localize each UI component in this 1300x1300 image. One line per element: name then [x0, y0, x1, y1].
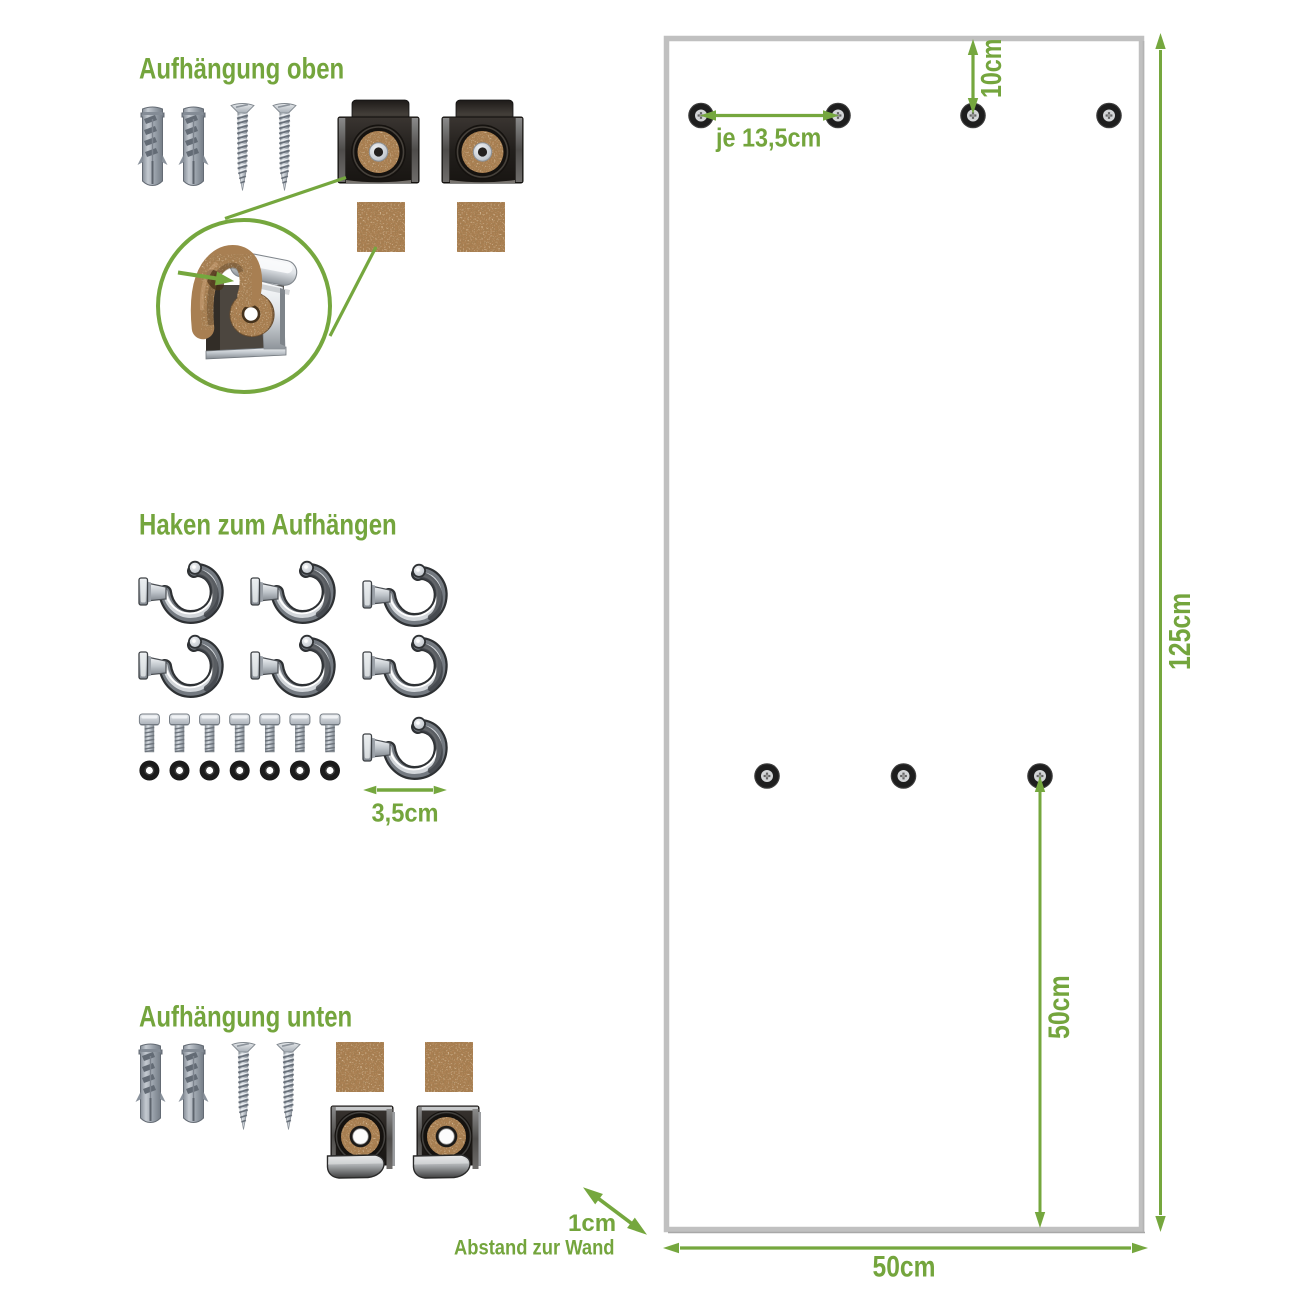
svg-text:3,5cm: 3,5cm — [371, 800, 438, 828]
svg-text:50cm: 50cm — [873, 1249, 936, 1283]
svg-text:je 13,5cm: je 13,5cm — [715, 124, 821, 152]
svg-text:Haken zum Aufhängen: Haken zum Aufhängen — [139, 507, 397, 541]
svg-text:Aufhängung unten: Aufhängung unten — [139, 999, 352, 1033]
svg-text:Abstand zur Wand: Abstand zur Wand — [454, 1236, 615, 1259]
svg-text:10cm: 10cm — [974, 39, 1007, 98]
svg-text:125cm: 125cm — [1162, 593, 1196, 670]
svg-text:1cm: 1cm — [568, 1210, 616, 1237]
svg-text:50cm: 50cm — [1042, 975, 1076, 1039]
svg-text:Aufhängung oben: Aufhängung oben — [139, 51, 344, 85]
